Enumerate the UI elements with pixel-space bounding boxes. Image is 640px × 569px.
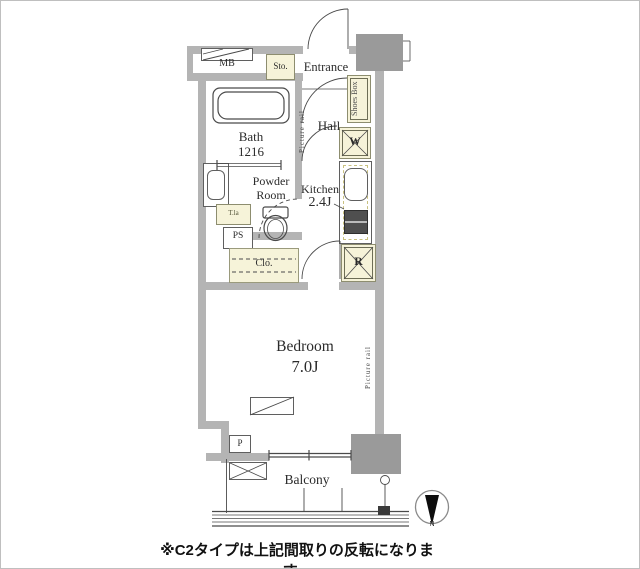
bedroom-size-label: 7.0J bbox=[255, 358, 355, 375]
door-arc-entrance bbox=[308, 9, 348, 49]
washer-label: W bbox=[339, 136, 371, 148]
ac-outdoor-unit bbox=[229, 462, 267, 480]
door-arc-bedroom bbox=[302, 241, 340, 279]
entrance-label: Entrance bbox=[299, 61, 353, 74]
mb-label: MB bbox=[201, 59, 253, 70]
fridge-label: R bbox=[341, 256, 376, 268]
pillar-top-right bbox=[356, 34, 403, 71]
powder-room-label-2: Room bbox=[241, 189, 301, 202]
compass-north-label: N bbox=[426, 521, 438, 528]
p-label: P bbox=[229, 439, 251, 448]
laundry-shelf-label: T.la bbox=[216, 210, 251, 217]
washbasin-bowl bbox=[207, 170, 225, 200]
powder-room-label-1: Powder bbox=[241, 175, 301, 188]
floor-plan-image: MB Sto. Entrance Shoes Box Picture rail … bbox=[0, 0, 640, 569]
pillar-bottom-right bbox=[351, 434, 401, 474]
railing-dark-box bbox=[378, 506, 390, 515]
picture-rail-hall-label: Picture rail bbox=[298, 102, 308, 162]
bathtub-shape bbox=[213, 88, 289, 123]
compass-icon bbox=[416, 491, 449, 526]
wall-powder-bottom bbox=[253, 232, 302, 240]
sto-label: Sto. bbox=[266, 62, 295, 71]
caption-text: ※С2タイプは上記間取りの反転になります。 bbox=[151, 539, 443, 569]
shoes-box-label: Shoes Box bbox=[350, 78, 368, 120]
picture-rail-bedroom-label: Picture rail bbox=[364, 336, 374, 400]
kitchen-size-label: 2.4J bbox=[297, 196, 343, 211]
hall-label: Hall bbox=[311, 119, 347, 133]
closet-label: Clo. bbox=[229, 259, 299, 270]
balcony-label: Balcony bbox=[273, 473, 341, 487]
wall-left bbox=[198, 73, 206, 429]
wall-right bbox=[375, 69, 384, 436]
toilet-tank bbox=[263, 207, 288, 218]
wall-bottom bbox=[206, 453, 269, 461]
desk-counter bbox=[250, 397, 294, 415]
kitchen-label: Kitchen bbox=[297, 183, 343, 196]
bedroom-label: Bedroom bbox=[255, 339, 355, 355]
bath-size-label: 1216 bbox=[225, 145, 277, 159]
ps-label: PS bbox=[223, 232, 253, 242]
stove bbox=[344, 210, 368, 234]
wall-bedroom-top-right bbox=[339, 282, 384, 290]
bathtub-inner bbox=[218, 92, 284, 119]
balcony-drain-circle bbox=[381, 476, 390, 485]
wall-bedroom-top-left bbox=[198, 282, 308, 290]
kitchen-sink bbox=[344, 168, 368, 201]
door-arc-hall bbox=[302, 78, 347, 123]
bath-label: Bath bbox=[225, 130, 277, 144]
